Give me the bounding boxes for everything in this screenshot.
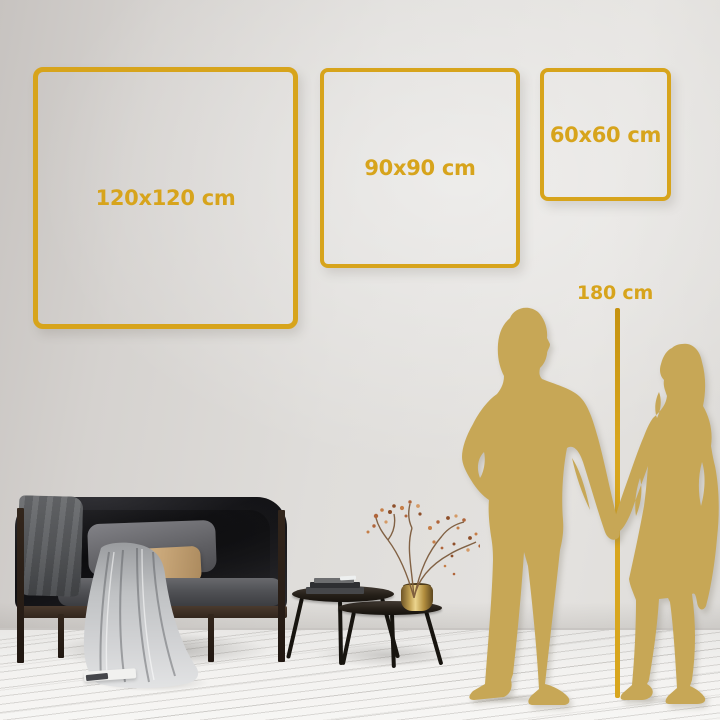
- branch-blossoms: [367, 500, 481, 575]
- sofa-leg-front-right: [278, 510, 285, 662]
- size-guide-scene: 120x120 cm 90x90 cm 60x60 cm 180 cm: [0, 0, 720, 720]
- throw-blanket: [75, 542, 215, 692]
- size-frame-60x60-label: 60x60 cm: [550, 123, 661, 147]
- man-silhouette: [462, 308, 620, 705]
- size-frame-60x60: 60x60 cm: [540, 68, 671, 201]
- size-frame-90x90-label: 90x90 cm: [364, 156, 475, 180]
- dark-gray-blanket: [17, 495, 84, 597]
- dried-branches: [330, 498, 480, 598]
- sofa-leg-mid-left: [58, 614, 64, 658]
- size-frame-120x120-label: 120x120 cm: [96, 186, 236, 210]
- woman-silhouette: [613, 344, 718, 704]
- size-frame-120x120: 120x120 cm: [33, 67, 298, 329]
- couple-silhouette: [440, 300, 720, 720]
- size-frame-90x90: 90x90 cm: [320, 68, 520, 268]
- sofa-leg-front-left: [17, 508, 24, 663]
